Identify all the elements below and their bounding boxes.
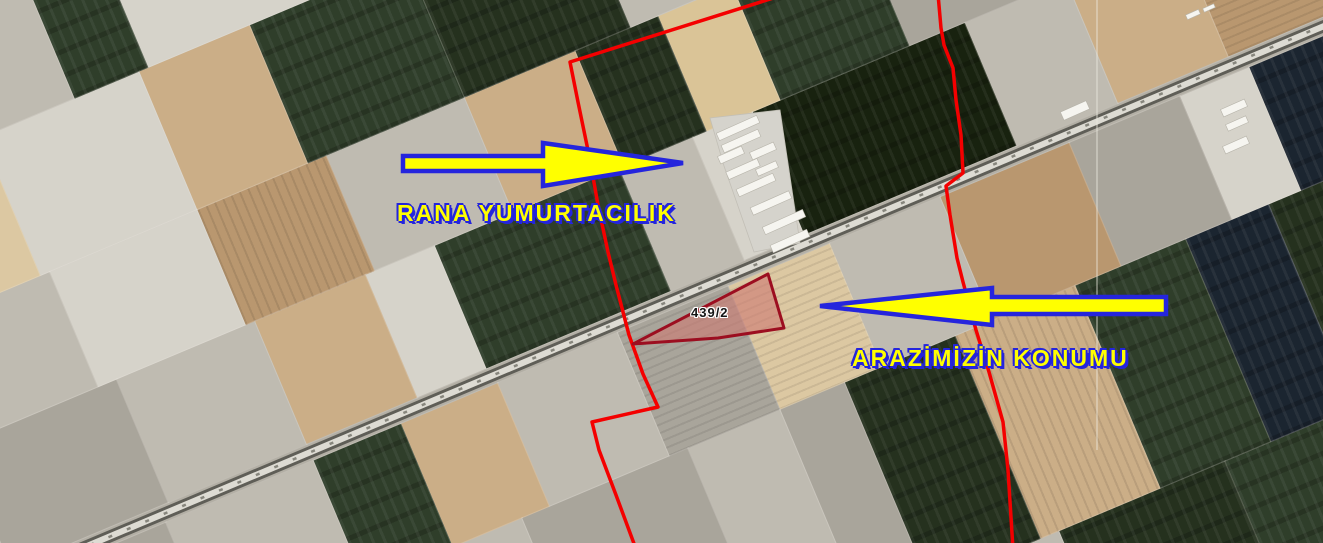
parcel-number-label: 439/2 bbox=[691, 305, 729, 320]
farmland-patchwork bbox=[0, 0, 1323, 543]
property-location-label: ARAZİMİZİN KONUMU bbox=[852, 345, 1129, 372]
rana-farm-label: RANA YUMURTACILIK bbox=[397, 200, 676, 227]
imagery-seam bbox=[1096, 0, 1098, 450]
satellite-map: RANA YUMURTACILIK ARAZİMİZİN KONUMU 439/… bbox=[0, 0, 1323, 543]
